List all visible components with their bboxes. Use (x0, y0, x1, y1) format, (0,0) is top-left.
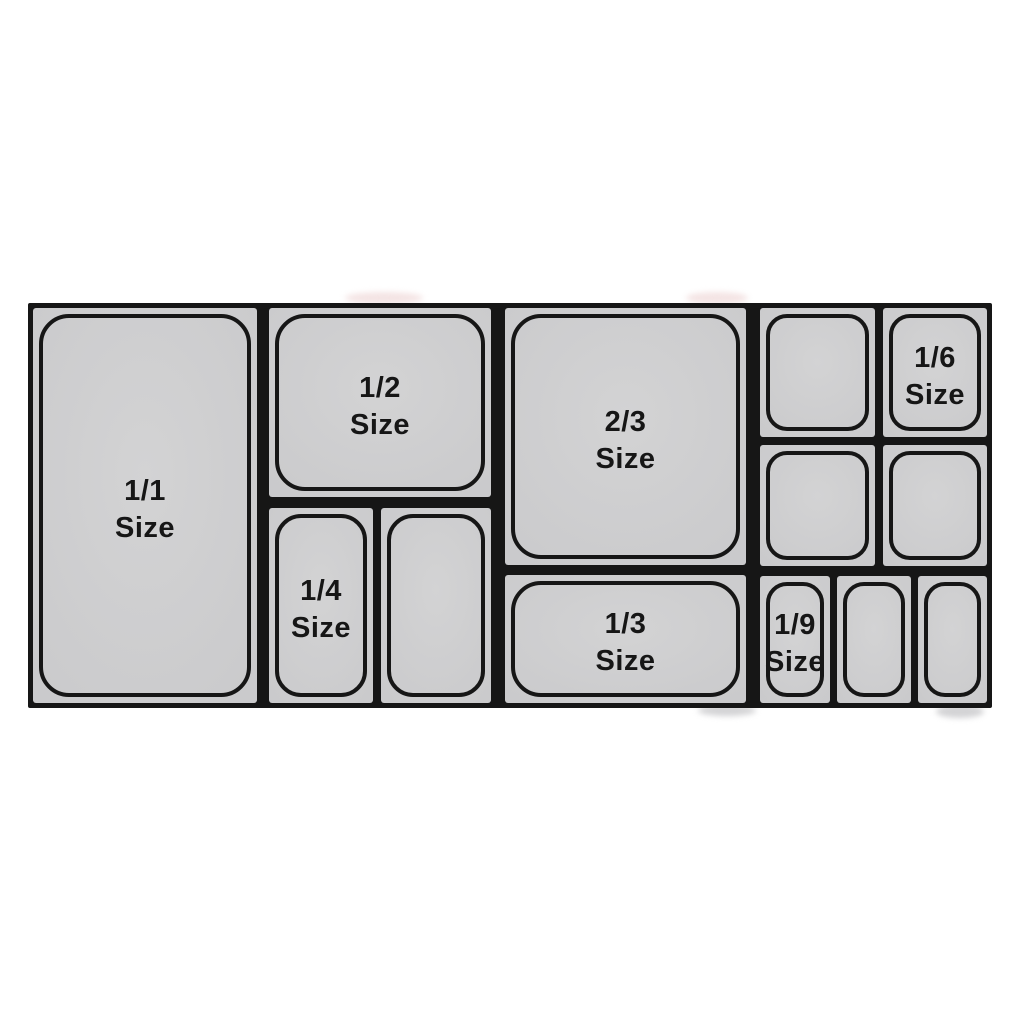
pan-size-diagram: 1/1 Size 1/2 Size 1/4 Size 2/3 Size (28, 303, 992, 708)
pan-1-6-unlabeled-right-label (883, 449, 987, 570)
pan-1-9-unlabeled-1-label (837, 580, 911, 707)
pan-1-3-cell: 1/3 Size (505, 575, 746, 703)
pan-1-4-fraction: 1/4 (300, 573, 342, 610)
pan-1-6-unlabeled-left-cell (760, 445, 875, 566)
pan-1-9-word: Size (765, 644, 825, 681)
pan-1-3-word: Size (595, 643, 655, 680)
pan-1-2-cell: 1/2 Size (269, 308, 491, 497)
pan-1-4-unlabeled-cell (381, 508, 491, 703)
pan-1-9-unlabeled-1-cell (837, 576, 911, 703)
pan-1-9-unlabeled-2-cell (918, 576, 987, 703)
pan-1-6-unlabeled-left-label (760, 449, 875, 570)
pan-1-6-unlabeled-top-label (760, 312, 875, 441)
pan-1-6-unlabeled-top-cell (760, 308, 875, 437)
pan-1-4-label: 1/4 Size (269, 512, 373, 707)
pan-1-6-unlabeled-right-cell (883, 445, 987, 566)
pan-2-3-label: 2/3 Size (505, 312, 746, 569)
pan-2-3-fraction: 2/3 (605, 404, 647, 441)
pan-1-9-label: 1/9 Size (760, 580, 830, 707)
pan-1-1-cell: 1/1 Size (33, 308, 257, 703)
pan-1-2-word: Size (350, 407, 410, 444)
pan-1-6-label: 1/6 Size (883, 312, 987, 441)
pan-1-3-label: 1/3 Size (505, 579, 746, 707)
pan-2-3-word: Size (595, 441, 655, 478)
pan-1-3-fraction: 1/3 (605, 606, 647, 643)
pan-1-9-unlabeled-2-label (918, 580, 987, 707)
pan-1-6-fraction: 1/6 (914, 340, 956, 377)
pan-1-6-word: Size (905, 377, 965, 414)
pan-1-4-unlabeled-label (381, 512, 491, 707)
pan-1-1-label: 1/1 Size (33, 312, 257, 707)
pan-1-9-cell: 1/9 Size (760, 576, 830, 703)
pan-1-1-fraction: 1/1 (124, 473, 166, 510)
pan-1-6-cell: 1/6 Size (883, 308, 987, 437)
pan-1-2-fraction: 1/2 (359, 370, 401, 407)
pan-1-9-fraction: 1/9 (774, 607, 816, 644)
pan-1-2-label: 1/2 Size (269, 312, 491, 501)
pan-1-4-word: Size (291, 610, 351, 647)
pan-1-4-cell: 1/4 Size (269, 508, 373, 703)
pan-2-3-cell: 2/3 Size (505, 308, 746, 565)
pan-1-1-word: Size (115, 510, 175, 547)
